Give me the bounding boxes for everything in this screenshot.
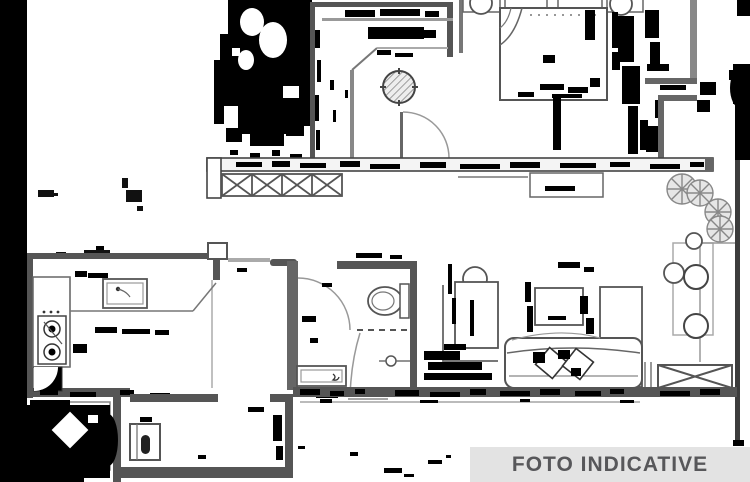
wall: [113, 467, 293, 478]
bedroom: [463, 0, 716, 154]
bathroom: [287, 253, 417, 399]
window-sill: [458, 173, 603, 197]
foto-indicative-banner: FOTO INDICATIVE: [470, 447, 750, 482]
angled-wall: [352, 48, 377, 70]
wall-notch: [208, 243, 227, 259]
hallway: [350, 48, 449, 160]
corner-cabinet: [34, 367, 62, 391]
terrace: [645, 233, 735, 396]
round-table: [380, 68, 418, 106]
toilet: [368, 284, 409, 318]
sofa: [505, 333, 642, 388]
banner-label: FOTO INDICATIVE: [512, 453, 708, 477]
round-stool: [686, 233, 702, 249]
wall: [350, 70, 354, 160]
lamp-circle: [470, 0, 492, 14]
wall: [310, 2, 453, 7]
bathroom-sink: [297, 366, 346, 386]
wall: [130, 394, 218, 402]
floor-plan-drawing: [0, 0, 750, 482]
wall: [337, 261, 417, 269]
round-stool: [684, 265, 708, 289]
washing-machine: [130, 424, 160, 460]
corridor: [228, 258, 297, 266]
wall-end-cap: [207, 158, 221, 198]
round-stool: [684, 314, 708, 338]
kitchen-sink: [103, 279, 147, 308]
kitchen: [27, 243, 247, 398]
wall: [27, 258, 33, 398]
right-boundary-line: [735, 160, 740, 446]
bottom-wall: [293, 387, 737, 403]
ink-specks-bottom: [298, 446, 451, 477]
wardrobe-ink-smudge: [345, 9, 439, 57]
desk: [455, 282, 498, 348]
nightstand-left: [463, 0, 500, 14]
wall: [410, 261, 417, 390]
terrace-plants: [667, 174, 733, 242]
drain: [386, 356, 396, 366]
living-room: [424, 262, 642, 388]
ink-blot: [733, 440, 744, 446]
round-stool: [664, 263, 684, 283]
plant-icon: [707, 216, 733, 242]
balcony-railing: [222, 174, 342, 196]
wall: [27, 253, 220, 259]
crossed-bench: [658, 365, 732, 388]
left-black-scan-bar: [0, 0, 27, 482]
floor-plan-image: FOTO INDICATIVE: [0, 0, 750, 482]
wall: [310, 2, 315, 160]
ink-specks-outside: [38, 178, 143, 256]
ink-artifact-top-right-edge: [729, 0, 750, 160]
laundry-room: [113, 394, 293, 482]
entry-threshold: [228, 258, 270, 262]
laundry-ink-artifacts: [140, 407, 283, 460]
ink-artifact-blob-bottom-left: [25, 400, 118, 478]
ink-artifact-blob-top: [214, 0, 348, 159]
tv-table: [535, 288, 583, 325]
stove: [38, 311, 66, 364]
wall: [285, 397, 293, 478]
sill-line: [300, 401, 640, 403]
wall: [213, 258, 220, 280]
door-arc: [400, 112, 449, 158]
wardrobe-shelf-line: [322, 18, 453, 21]
